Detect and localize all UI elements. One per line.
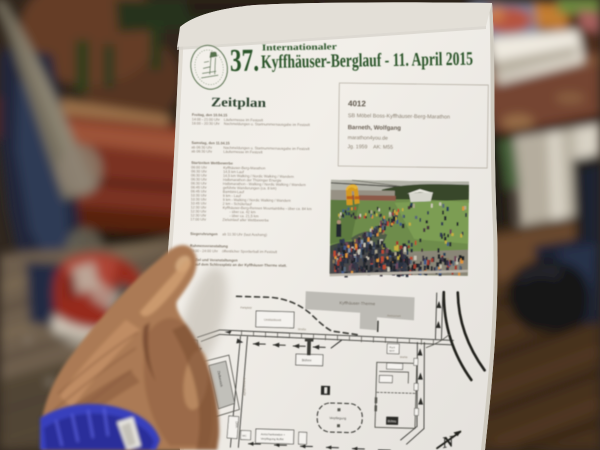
svg-text:Jg. 1959 AK: M55: Jg. 1959 AK: M55 <box>347 144 393 151</box>
svg-text:Zieleinlauf aller Wettbewerbe: Zieleinlauf aller Wettbewerbe <box>222 218 268 223</box>
svg-text:16:00 - 20:30 Uhr: 16:00 - 20:30 Uhr <box>192 121 221 125</box>
svg-text:ab 06:30 Uhr: ab 06:30 Uhr <box>191 149 213 153</box>
svg-text:Läufermesse im Festzelt: Läufermesse im Festzelt <box>223 150 262 155</box>
svg-text:Bühne: Bühne <box>302 358 312 362</box>
svg-text:Verpflegung: Verpflegung <box>329 416 346 420</box>
svg-text:DRK: DRK <box>235 421 239 429</box>
svg-text:marathon4you.de: marathon4you.de <box>348 135 389 142</box>
svg-text:Zufahrtsstraße: Zufahrtsstraße <box>242 378 246 397</box>
svg-text:Kyffhäuser-Therme: Kyffhäuser-Therme <box>339 300 376 306</box>
svg-text:Zeitplan: Zeitplan <box>211 94 267 110</box>
svg-text:Parkplatz: Parkplatz <box>240 305 252 309</box>
svg-text:Barneth, Wolfgang: Barneth, Wolfgang <box>348 125 402 132</box>
svg-text:Mahle: Mahle <box>400 355 408 359</box>
svg-text:37.: 37. <box>230 42 260 78</box>
svg-text:Straße: Straße <box>298 327 307 331</box>
svg-text:4012: 4012 <box>348 99 366 108</box>
svg-text:Restaurant: Restaurant <box>387 314 401 318</box>
svg-text:17:00 Uhr: 17:00 Uhr <box>190 217 207 221</box>
svg-text:Rahmenveranstaltung: Rahmenveranstaltung <box>190 244 228 249</box>
svg-text:sport: sport <box>389 349 395 352</box>
svg-text:Umkleidezelt: Umkleidezelt <box>264 318 281 322</box>
svg-text:Bühne: Bühne <box>388 419 397 423</box>
svg-text:öffentlicher Sportlerball im F: öffentlicher Sportlerball im Festzelt <box>222 249 277 254</box>
svg-text:Siegerehrungen: Siegerehrungen <box>190 232 217 236</box>
svg-text:ab 11:30 Uhr (laut Aushang): ab 11:30 Uhr (laut Aushang) <box>222 232 267 237</box>
svg-text:WC: WC <box>242 434 247 438</box>
svg-text:Verpflegung Buffet: Verpflegung Buffet <box>261 437 284 442</box>
svg-text:Kyffhäuser-Berglauf - 11. Apri: Kyffhäuser-Berglauf - 11. April 2015 <box>261 49 473 73</box>
